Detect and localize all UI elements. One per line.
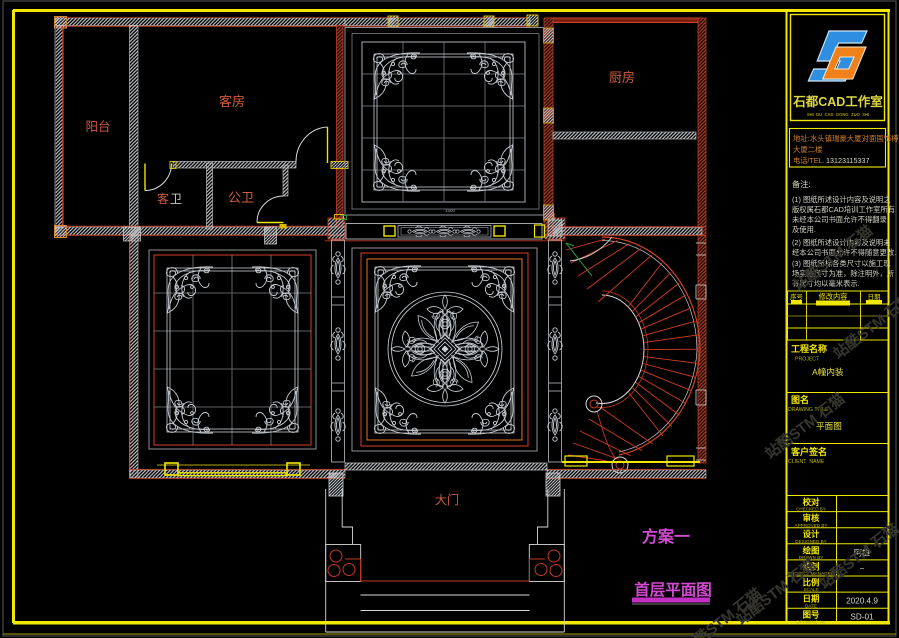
svg-text:绘图: 绘图 — [803, 545, 820, 555]
svg-text:DATE: DATE — [805, 603, 817, 608]
svg-text:SHI DU CAD GONG ZUO SHI: SHI DU CAD GONG ZUO SHI — [807, 112, 869, 117]
svg-text:CHECKED BY: CHECKED BY — [796, 507, 826, 512]
svg-text:13123115337: 13123115337 — [826, 156, 869, 165]
svg-text:CLIENT NAME: CLIENT NAME — [788, 459, 825, 465]
svg-text:图号: 图号 — [803, 610, 820, 620]
svg-text:APPROVED BY: APPROVED BY — [795, 523, 828, 528]
svg-text:阳台: 阳台 — [85, 119, 110, 134]
svg-text:日期: 日期 — [868, 293, 881, 301]
svg-text:日期: 日期 — [803, 594, 820, 604]
svg-text:客户签名: 客户签名 — [790, 446, 827, 457]
svg-text:未经本公司书面允许不得翻录: 未经本公司书面允许不得翻录 — [792, 215, 887, 224]
svg-text:石都CAD工作室: 石都CAD工作室 — [792, 94, 883, 109]
svg-text:修改内容: 修改内容 — [819, 292, 848, 301]
svg-text:电话/TEL.: 电话/TEL. — [793, 156, 825, 165]
svg-text:A幢内装: A幢内装 — [812, 366, 844, 377]
svg-text:校对: 校对 — [803, 497, 820, 507]
svg-text:地址:水头镇瑞豪大厦对面国饰樽: 地址:水头镇瑞豪大厦对面国饰樽 — [793, 134, 899, 143]
svg-text:方案一: 方案一 — [642, 527, 690, 546]
svg-text:(1) 图纸所述设计内容及说明之: (1) 图纸所述设计内容及说明之 — [792, 195, 891, 204]
svg-text:1500: 1500 — [445, 208, 456, 213]
svg-text:首层平面图: 首层平面图 — [634, 580, 712, 599]
svg-text:SCALE: SCALE — [803, 587, 818, 592]
svg-text:设计: 设计 — [803, 529, 820, 539]
svg-text:客: 客 — [157, 191, 169, 206]
svg-text:大门: 大门 — [435, 492, 459, 507]
svg-text:DRAWING No: DRAWING No — [796, 619, 826, 624]
svg-text:审核: 审核 — [803, 513, 820, 523]
svg-text:2020.4.9: 2020.4.9 — [846, 597, 878, 606]
svg-text:公卫: 公卫 — [228, 190, 254, 205]
svg-text:客房: 客房 — [219, 94, 245, 109]
svg-text:大厦二楼: 大厦二楼 — [793, 145, 823, 154]
svg-text:PROJECT: PROJECT — [795, 357, 820, 363]
svg-text:图名: 图名 — [791, 394, 809, 405]
svg-text:厨房: 厨房 — [609, 70, 635, 85]
svg-text:及使用.: 及使用. — [792, 225, 816, 234]
svg-text:DESIGNED BY: DESIGNED BY — [795, 539, 826, 544]
svg-text:工程名称: 工程名称 — [791, 343, 827, 354]
svg-text:备注:: 备注: — [792, 179, 811, 189]
svg-text:SD-01: SD-01 — [850, 613, 874, 622]
svg-text:卫: 卫 — [170, 192, 182, 206]
svg-text:版权属石都CAD培训工作室所有: 版权属石都CAD培训工作室所有 — [792, 205, 895, 214]
